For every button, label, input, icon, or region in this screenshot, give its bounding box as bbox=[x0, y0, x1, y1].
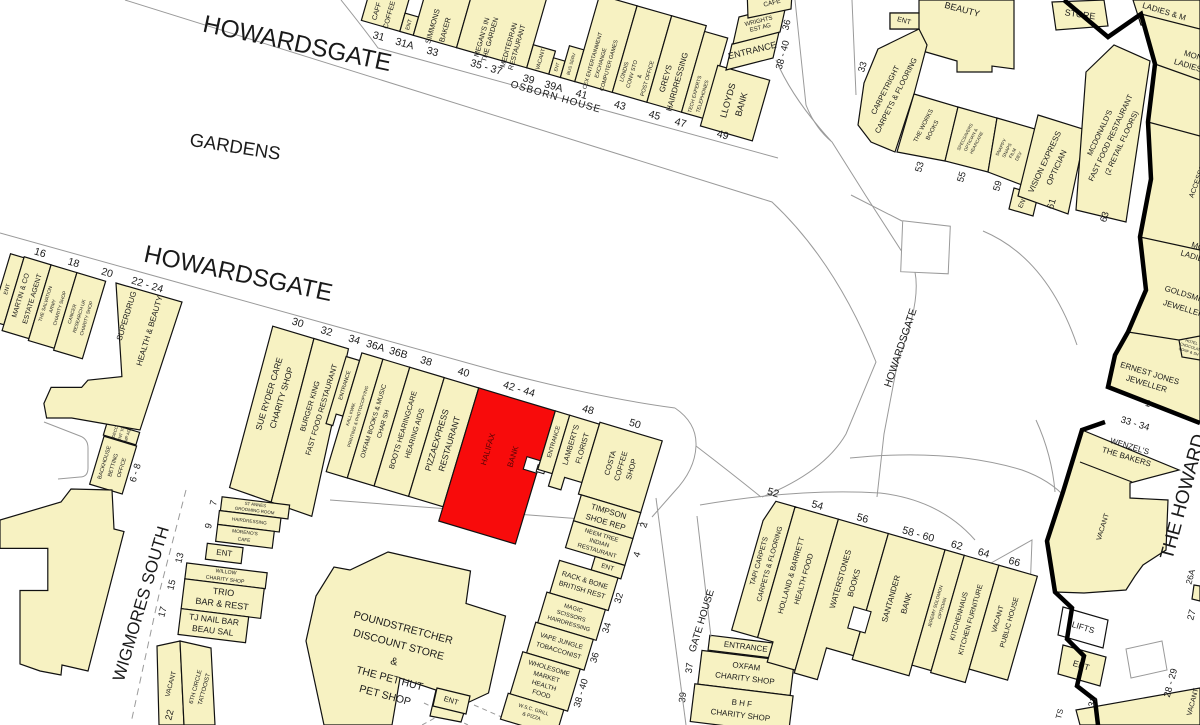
svg-text:37: 37 bbox=[684, 662, 696, 674]
